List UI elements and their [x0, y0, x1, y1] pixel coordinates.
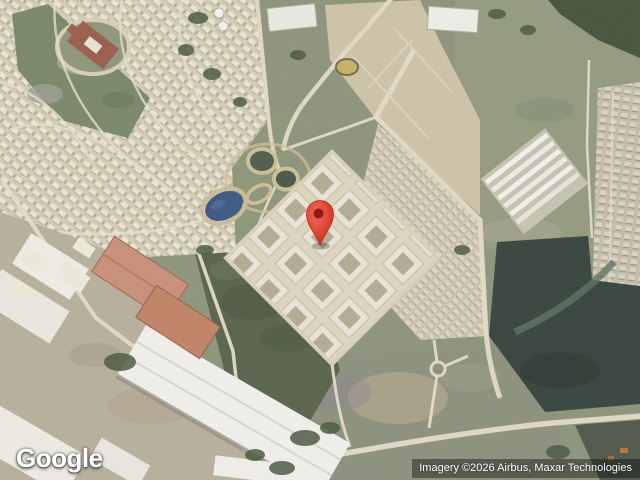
pin-inner-dot [314, 209, 324, 219]
imagery-attribution: Imagery ©2026 Airbus, Maxar Technologies [412, 459, 640, 478]
satellite-map[interactable] [0, 0, 640, 480]
map-viewport[interactable]: Google Imagery ©2026 Airbus, Maxar Techn… [0, 0, 640, 480]
google-logo[interactable]: Google [16, 443, 103, 474]
